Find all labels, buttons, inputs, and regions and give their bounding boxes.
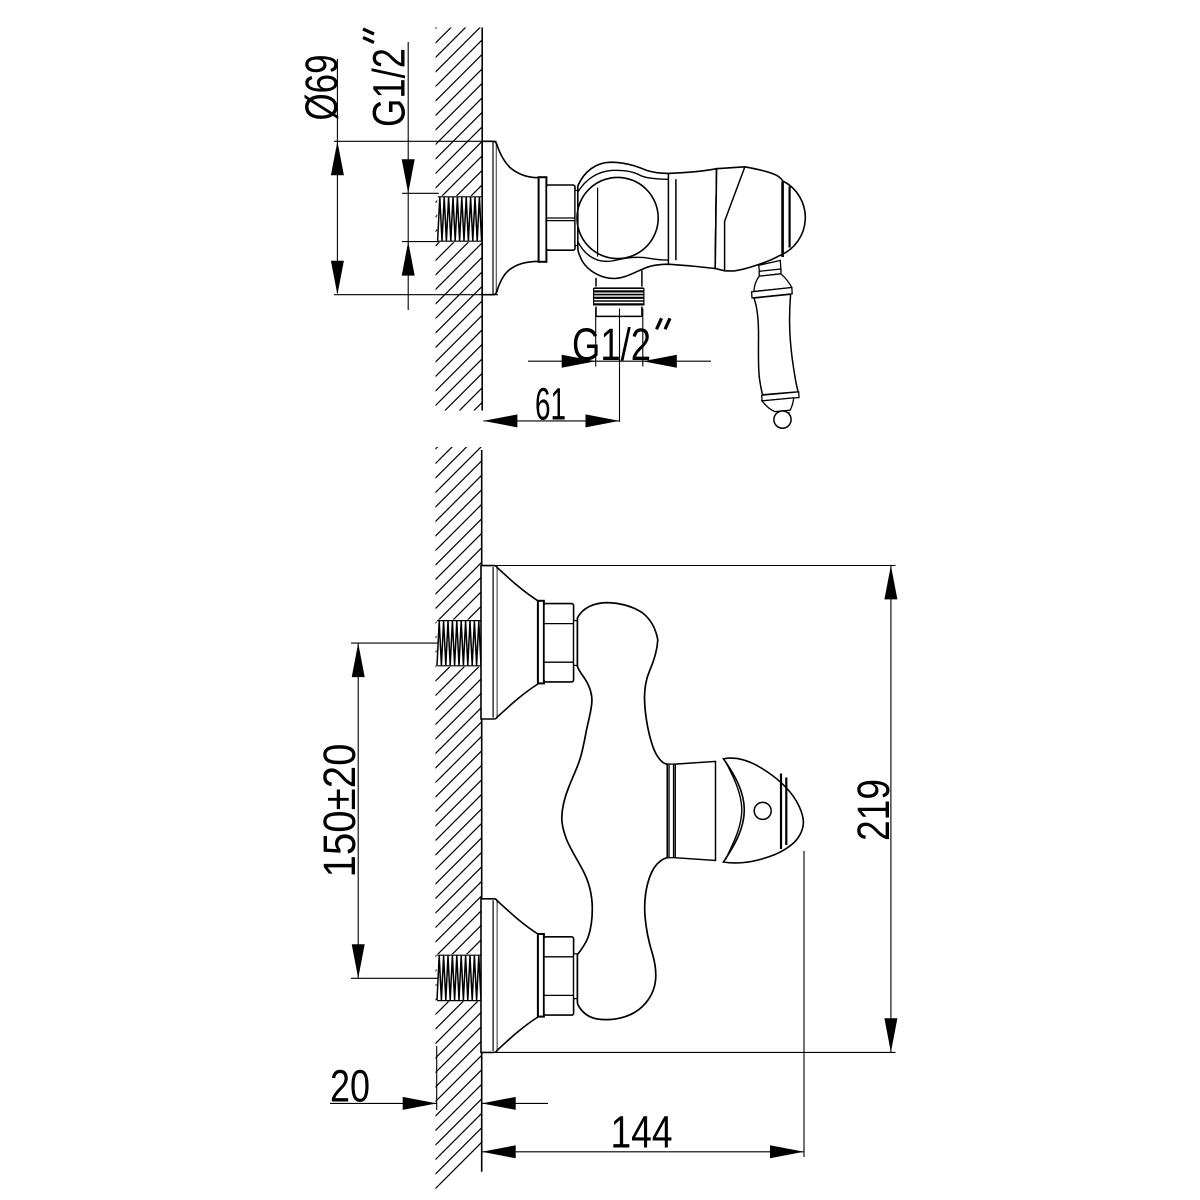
svg-text:144: 144 — [611, 1107, 673, 1158]
svg-text:61: 61 — [535, 379, 566, 430]
svg-text:219: 219 — [848, 779, 899, 841]
svg-text:150±20: 150±20 — [314, 744, 365, 878]
svg-text:20: 20 — [330, 1061, 370, 1112]
svg-text:G1/2: G1/2 — [364, 48, 415, 127]
svg-text:Ø69: Ø69 — [296, 55, 347, 121]
svg-text:G1/2: G1/2 — [572, 319, 651, 370]
